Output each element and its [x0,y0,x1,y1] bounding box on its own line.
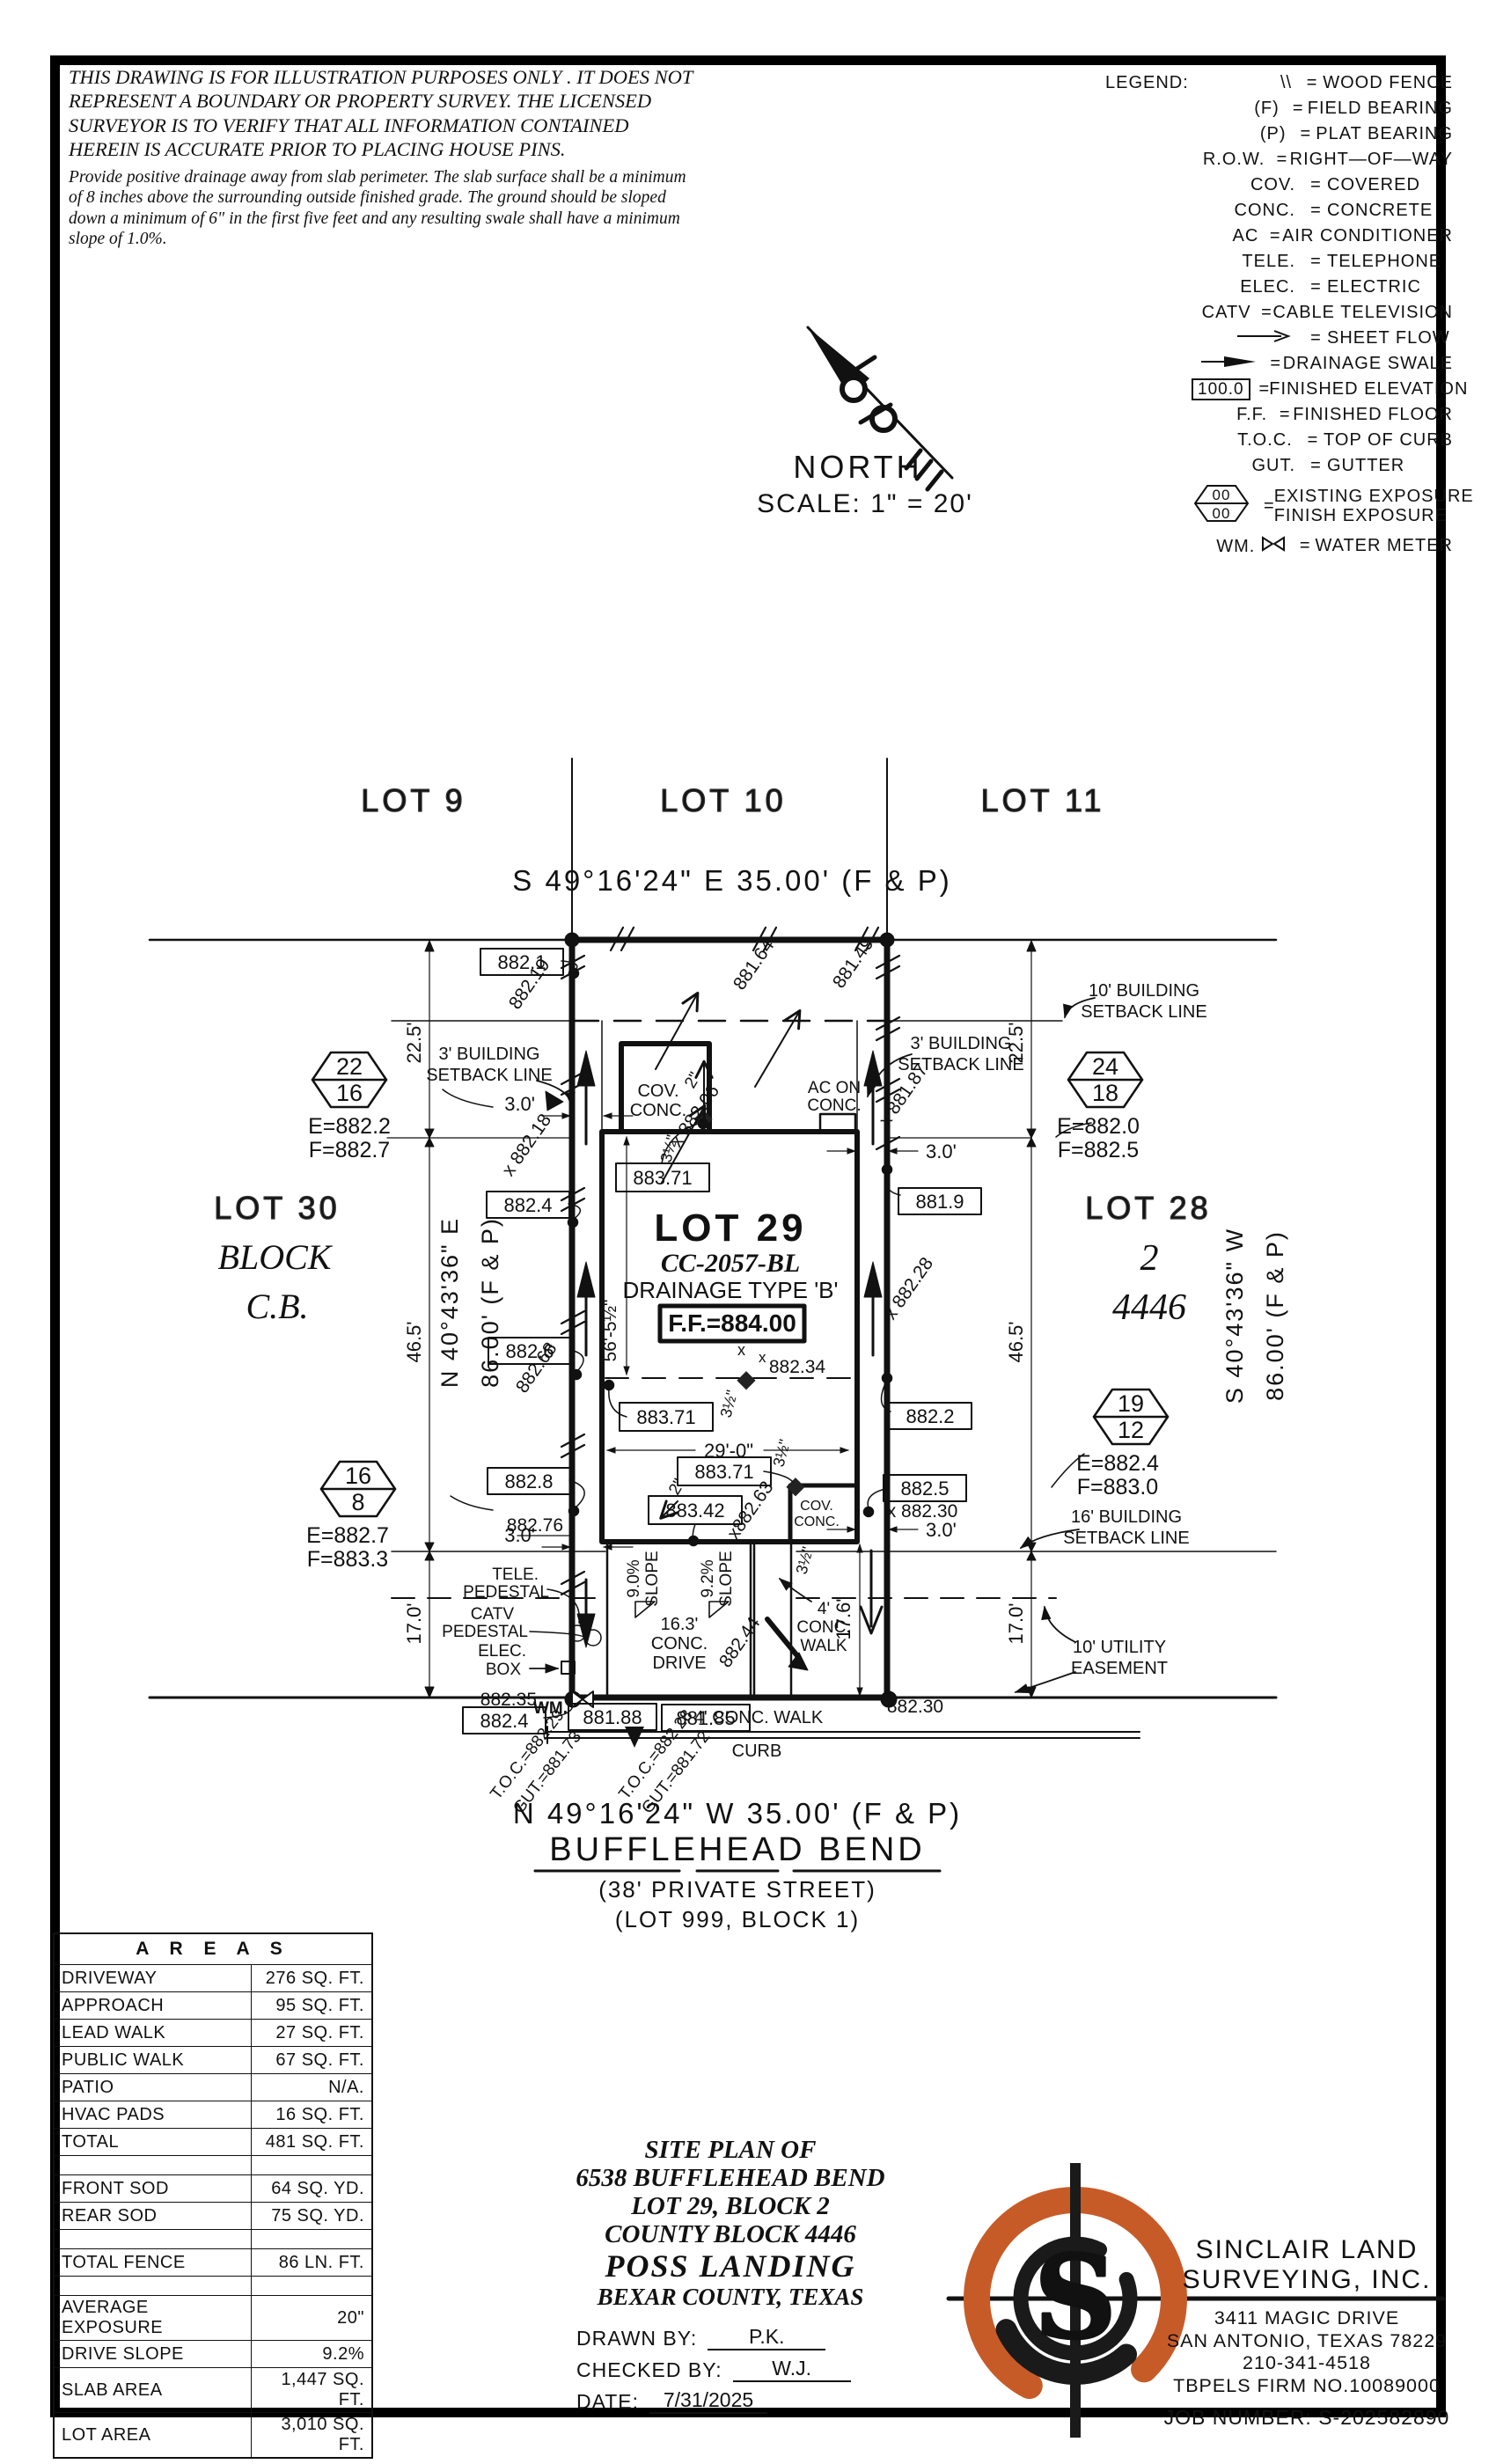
areas-row-value: 64 SQ. YD. [251,2175,372,2203]
svg-text:16: 16 [336,1080,363,1106]
areas-row-label: TOTAL FENCE [54,2249,251,2277]
job-number: JOB NUMBER: S-202582890 [1162,2406,1452,2430]
elev-881-9: 881.9 [915,1191,964,1213]
dim-3-0-front-right: 3.0' [926,1519,957,1541]
setback-3ft-left-1: 3' BUILDING [439,1045,540,1064]
areas-row: PATION/A. [54,2074,372,2101]
svg-text:22: 22 [336,1053,363,1080]
areas-row-value: 16 SQ. FT. [251,2101,372,2129]
street-sub2: (LOT 999, BLOCK 1) [615,1906,860,1932]
areas-table-body: A R E A S DRIVEWAY276 SQ. FT.APPROACH95 … [54,1933,372,2458]
areas-row: SLAB AREA1,447 SQ. FT. [54,2368,372,2413]
cb-label: C.B. [246,1287,308,1326]
areas-row: REAR SOD75 SQ. YD. [54,2203,372,2230]
svg-text:F=882.7: F=882.7 [309,1138,390,1162]
logo-letter: S [1034,2230,1117,2365]
right-bearing-length: 86.00' (F & P) [1262,1230,1288,1401]
elev-883-71-a: 883.71 [633,1167,692,1189]
date-label: DATE: [576,2390,639,2414]
dim-17-0-right: 17.0' [1005,1602,1027,1644]
areas-row-value: 481 SQ. FT. [251,2129,372,2156]
setback-3ft-right-1: 3' BUILDING [911,1034,1012,1053]
checked-by-label: CHECKED BY: [576,2358,722,2382]
areas-row: PUBLIC WALK67 SQ. FT. [54,2047,372,2074]
drawn-by-value: P.K. [708,2325,825,2350]
elev-882-4-btm: 882.4 [480,1710,528,1732]
ac-label-2: CONC. [807,1096,861,1115]
company-phone: 210-341-4518 [1162,2353,1452,2374]
dim-46-5-left: 46.5' [403,1321,425,1362]
street-name: BUFFLEHEAD BEND [549,1831,925,1868]
front-bearing: N 49°16'24" W 35.00' (F & P) [513,1797,962,1830]
areas-row-label: LEAD WALK [54,2020,251,2047]
title-line-5: POSS LANDING [493,2249,968,2284]
areas-row-label: TOTAL [54,2129,251,2156]
areas-row: DRIVEWAY276 SQ. FT. [54,1965,372,1992]
spot-882-30-bottom: 882.30 [887,1697,943,1717]
areas-row-value: N/A. [251,2074,372,2101]
elec-box-1: ELEC. [478,1642,526,1661]
areas-row-value: 86 LN. FT. [251,2249,372,2277]
catv-pedestal-1: CATV [471,1605,515,1624]
dim-3-0-rear-right: 3.0' [926,1140,957,1162]
conc-walk-label-2: CONC. [796,1618,850,1637]
areas-row-value: 67 SQ. FT. [251,2047,372,2074]
entry-cov-label-1: COV. [800,1499,833,1514]
spot-882-34: 882.34 [769,1357,826,1377]
dim-3-0-rear-left: 3.0' [504,1093,535,1115]
dim-46-5-right: 46.5' [1005,1321,1027,1362]
dim-3half-se1: 3½" [770,1438,794,1470]
areas-row [54,2230,372,2249]
street-sub1: (38' PRIVATE STREET) [598,1876,876,1903]
areas-row [54,2156,372,2175]
elev-883-71-c: 883.71 [694,1461,753,1483]
slope-90-word: SLOPE [643,1551,662,1606]
left-bearing-direction: N 40°43'36" E [436,1217,463,1388]
lot28-label: LOT 28 [1085,1190,1211,1226]
areas-row: AVERAGE EXPOSURE20" [54,2296,372,2341]
areas-row-value [251,2230,372,2249]
svg-text:E=882.2: E=882.2 [308,1114,391,1139]
dim-3half-se2: 3½" [793,1545,817,1577]
areas-row-label: REAR SOD [54,2203,251,2230]
spot-882-76: 882.76 [507,1515,563,1536]
title-block: SITE PLAN OF 6538 BUFFLEHEAD BEND LOT 29… [493,2137,968,2311]
elec-box-2: BOX [486,1661,521,1679]
areas-row-value: 3,010 SQ. FT. [251,2413,372,2459]
rear-bearing: S 49°16'24" E 35.00' (F & P) [512,864,951,897]
plan-labels: LOT 9 LOT 10 LOT 11 S 49°16'24" E 35.00'… [214,782,1288,1932]
cb4446-label: 4446 [1112,1287,1186,1328]
areas-row-label [54,2277,251,2296]
spot-882-30-right: x 882.30 [887,1501,958,1522]
lot11-label: LOT 11 [981,782,1105,818]
conc-walk-label-1: 4' [818,1600,830,1618]
company-address-1: 3411 MAGIC DRIVE [1162,2308,1452,2329]
slope-92-word: SLOPE [717,1551,736,1606]
areas-row: HVAC PADS16 SQ. FT. [54,2101,372,2129]
areas-row-label: PUBLIC WALK [54,2047,251,2074]
svg-text:18: 18 [1092,1080,1118,1106]
company-address-2: SAN ANTONIO, TEXAS 78229 [1162,2331,1452,2352]
svg-text:16: 16 [345,1463,371,1489]
areas-row: TOTAL481 SQ. FT. [54,2129,372,2156]
svg-text:8: 8 [351,1489,364,1515]
conc-walk-label-3: WALK [800,1637,847,1655]
spot-882-18: x 882.18 [498,1111,555,1180]
north-label: NORTH [793,449,922,485]
slope-90-label: 9.0% [625,1559,643,1597]
water-meter-symbol [572,1691,593,1707]
svg-text:F=882.5: F=882.5 [1058,1138,1139,1162]
company-name-1: SINCLAIR LAND [1162,2235,1452,2265]
exposure-marker-16-8: 16 8 E=882.7 F=883.3 [306,1462,395,1572]
areas-row-label: FRONT SOD [54,2175,251,2203]
catv-pedestal-2: PEDESTAL [442,1623,528,1641]
areas-row: LEAD WALK27 SQ. FT. [54,2020,372,2047]
checked-by-value: W.J. [733,2357,851,2382]
areas-row-value: 27 SQ. FT. [251,2020,372,2047]
setback-10ft-1: 10' BUILDING [1089,981,1199,1001]
areas-row: TOTAL FENCE86 LN. FT. [54,2249,372,2277]
block2-label: 2 [1140,1238,1159,1279]
ac-label-1: AC ON [808,1079,861,1097]
spot-882-63: x882.63 [723,1478,778,1543]
company-firm: TBPELS FIRM NO.10089000 [1162,2376,1452,2397]
drawn-by-label: DRAWN BY: [576,2327,697,2350]
title-line-3: LOT 29, BLOCK 2 [493,2193,968,2221]
svg-text:F=883.0: F=883.0 [1077,1475,1158,1500]
tele-pedestal-2: PEDESTAL [463,1583,549,1602]
drive-label-1: 16.3' [661,1615,699,1634]
title-line-2: 6538 BUFFLEHEAD BEND [493,2165,968,2193]
exposure-marker-24-18: 24 18 E=882.0 F=882.5 [1057,1052,1142,1162]
x-mark-88234: x [759,1349,766,1366]
setback-16ft-2: SETBACK LINE [1063,1529,1189,1548]
block-label: BLOCK [218,1237,334,1277]
utility-easement-2: EASEMENT [1071,1659,1168,1678]
areas-row-label: LOT AREA [54,2413,251,2459]
title-line-6: BEXAR COUNTY, TEXAS [493,2284,968,2311]
dim-56-5: 56'-5½" [600,1299,620,1361]
tele-pedestal-1: TELE. [492,1566,539,1584]
areas-row-label [54,2230,251,2249]
curb-label: CURB [732,1742,782,1761]
elev-881-88: 881.88 [583,1706,642,1728]
title-line-4: COUNTY BLOCK 4446 [493,2221,968,2249]
lot30-label: LOT 30 [214,1190,340,1226]
porch-cov-label-1: COV. [637,1082,678,1101]
elev-883-71-b: 883.71 [636,1406,695,1428]
areas-table: A R E A S DRIVEWAY276 SQ. FT.APPROACH95 … [53,1932,373,2459]
elev-882-5: 882.5 [900,1478,949,1500]
drive-label-3: DRIVE [652,1654,706,1673]
areas-row-value: 276 SQ. FT. [251,1965,372,1992]
setback-10ft-2: SETBACK LINE [1081,1002,1206,1022]
svg-text:E=882.4: E=882.4 [1076,1451,1159,1476]
drainage-type-label: DRAINAGE TYPE 'B' [623,1277,839,1303]
conc-walk-label-street: 4' CONC. WALK [694,1708,824,1727]
survey-site-plan-page: THIS DRAWING IS FOR ILLUSTRATION PURPOSE… [0,0,1496,2464]
spot-882-44: 882.44 [715,1613,765,1671]
elev-883-42: 883.42 [665,1500,724,1522]
areas-title: A R E A S [54,1933,372,1965]
areas-row-label: PATIO [54,2074,251,2101]
areas-row-label: HVAC PADS [54,2101,251,2129]
setback-3ft-left-2: SETBACK LINE [426,1066,552,1085]
cc-label: CC-2057-BL [661,1249,800,1278]
scale-label: SCALE: 1" = 20' [757,489,973,518]
areas-row: APPROACH95 SQ. FT. [54,1992,372,2020]
company-info: SINCLAIR LAND SURVEYING, INC. 3411 MAGIC… [1162,2235,1452,2430]
elev-882-2: 882.2 [906,1405,954,1427]
utility-easement-1: 10' UTILITY [1073,1638,1166,1657]
areas-row-label [54,2156,251,2175]
svg-text:12: 12 [1118,1417,1144,1443]
svg-text:E=882.0: E=882.0 [1057,1114,1140,1139]
areas-row-value: 1,447 SQ. FT. [251,2368,372,2413]
signoff-block: DRAWN BY: P.K. CHECKED BY: W.J. DATE: 7/… [576,2325,876,2420]
areas-row-value: 20" [251,2296,372,2341]
dim-17-0-left: 17.0' [403,1602,425,1644]
lot10-label: LOT 10 [660,782,786,818]
areas-row-label: APPROACH [54,1992,251,2020]
ff-label: F.F.=884.00 [668,1309,796,1337]
drive-label-2: CONC. [651,1634,708,1654]
dim-3half-mid: 3½" [717,1389,741,1420]
exposure-marker-22-16: 22 16 E=882.2 F=882.7 [308,1052,391,1162]
svg-text:24: 24 [1092,1053,1118,1080]
areas-row-label: DRIVEWAY [54,1965,251,1992]
exposure-marker-19-12: 19 12 E=882.4 F=883.0 [1076,1390,1168,1500]
right-bearing-direction: S 40°43'36" W [1221,1228,1248,1404]
elev-882-8: 882.8 [504,1470,553,1492]
areas-row-value: 95 SQ. FT. [251,1992,372,2020]
slope-92-label: 9.2% [699,1559,717,1597]
svg-text:19: 19 [1118,1390,1144,1417]
svg-text:E=882.7: E=882.7 [306,1523,389,1548]
areas-row-label: DRIVE SLOPE [54,2341,251,2368]
areas-row-label: SLAB AREA [54,2368,251,2413]
porch-cov-label-2: CONC. [630,1101,686,1120]
company-name-2: SURVEYING, INC. [1162,2265,1452,2295]
areas-row-value [251,2156,372,2175]
areas-row-value: 75 SQ. YD. [251,2203,372,2230]
areas-row: LOT AREA3,010 SQ. FT. [54,2413,372,2459]
left-bearing-length: 86.00' (F & P) [477,1217,503,1388]
areas-row-label: AVERAGE EXPOSURE [54,2296,251,2341]
dim-29-0: 29'-0" [704,1440,753,1462]
title-line-1: SITE PLAN OF [493,2137,968,2165]
svg-text:F=883.3: F=883.3 [307,1547,388,1572]
entry-cov-label-2: CONC. [794,1514,840,1529]
elev-882-4: 882.4 [503,1194,552,1216]
dim-22-5-left: 22.5' [403,1022,425,1063]
spot-881-64: 881.64 [730,935,779,994]
areas-row: DRIVE SLOPE9.2% [54,2341,372,2368]
areas-row-value [251,2277,372,2296]
areas-row: FRONT SOD64 SQ. YD. [54,2175,372,2203]
areas-row-value: 9.2% [251,2341,372,2368]
lot9-label: LOT 9 [361,782,466,818]
setback-16ft-1: 16' BUILDING [1071,1507,1182,1527]
lot29-label: LOT 29 [654,1206,806,1250]
x-mark: x [737,1341,745,1359]
date-value: 7/31/2025 [649,2388,767,2414]
spot-882-35: 882.35 [480,1690,537,1710]
areas-row [54,2277,372,2296]
